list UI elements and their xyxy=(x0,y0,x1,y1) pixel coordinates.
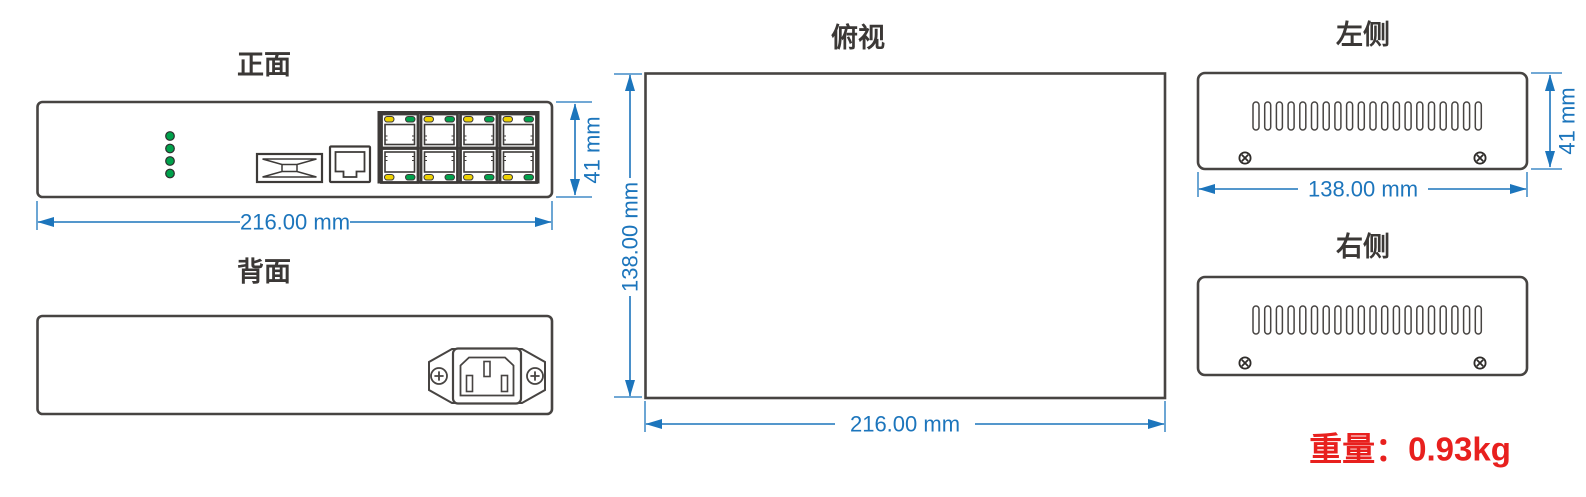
sfp-port-icon xyxy=(257,154,322,182)
front-view-title: 正面 xyxy=(237,50,291,80)
rj45-port-icon xyxy=(461,114,498,148)
left-width-dimension-label: 138.00 mm xyxy=(1308,177,1418,202)
rj45-port-icon xyxy=(421,149,458,183)
top-width-dimension: 216.00 mm xyxy=(645,401,1165,437)
left-height-dimension-label: 41 mm xyxy=(1555,87,1580,154)
front-width-dimension-label: 216.00 mm xyxy=(240,210,350,235)
top-depth-dimension: 138.00 mm xyxy=(614,74,643,397)
back-view-title: 背面 xyxy=(237,257,291,287)
rj45-port-icon xyxy=(382,149,419,183)
left-width-dimension: 138.00 mm xyxy=(1198,172,1527,202)
console-rj45-port-icon xyxy=(330,147,370,183)
rj45-port-icon xyxy=(461,149,498,183)
weight-value: 重量：0.93kg xyxy=(1309,431,1511,468)
power-inlet-icon xyxy=(429,349,545,404)
screw-icon xyxy=(431,368,447,384)
rj45-port-icon xyxy=(500,114,537,148)
top-depth-dimension-label: 138.00 mm xyxy=(618,182,643,292)
left-side-view: 左侧 41 mm 138.00 mm xyxy=(1198,20,1580,202)
top-panel-outline xyxy=(646,74,1166,399)
screw-icon xyxy=(1239,152,1250,163)
top-view-title: 俯视 xyxy=(831,22,885,53)
screw-icon xyxy=(1474,357,1485,368)
rj45-port-icon xyxy=(421,114,458,148)
front-view: 正面 21 xyxy=(37,50,605,235)
left-height-dimension: 41 mm xyxy=(1531,73,1580,169)
front-width-dimension: 216.00 mm xyxy=(37,201,552,235)
front-height-dimension: 41 mm xyxy=(556,102,605,197)
drawing-svg: 正面 21 xyxy=(0,0,1586,497)
screw-icon xyxy=(527,368,543,384)
screw-icon xyxy=(1239,357,1250,368)
rj45-port-icon xyxy=(382,114,419,148)
back-view: 背面 xyxy=(38,257,553,414)
top-width-dimension-label: 216.00 mm xyxy=(850,412,960,437)
product-dimension-drawing: 正面 21 xyxy=(0,0,1586,497)
top-view: 俯视 138.00 mm 216.00 mm xyxy=(614,22,1165,437)
left-view-title: 左侧 xyxy=(1336,20,1390,50)
rj45-port-icon xyxy=(500,149,537,183)
rj45-port-block xyxy=(379,113,538,183)
screw-icon xyxy=(1474,152,1485,163)
right-view-title: 右侧 xyxy=(1336,232,1390,262)
front-height-dimension-label: 41 mm xyxy=(580,116,605,183)
right-side-view: 右侧 xyxy=(1198,232,1527,375)
